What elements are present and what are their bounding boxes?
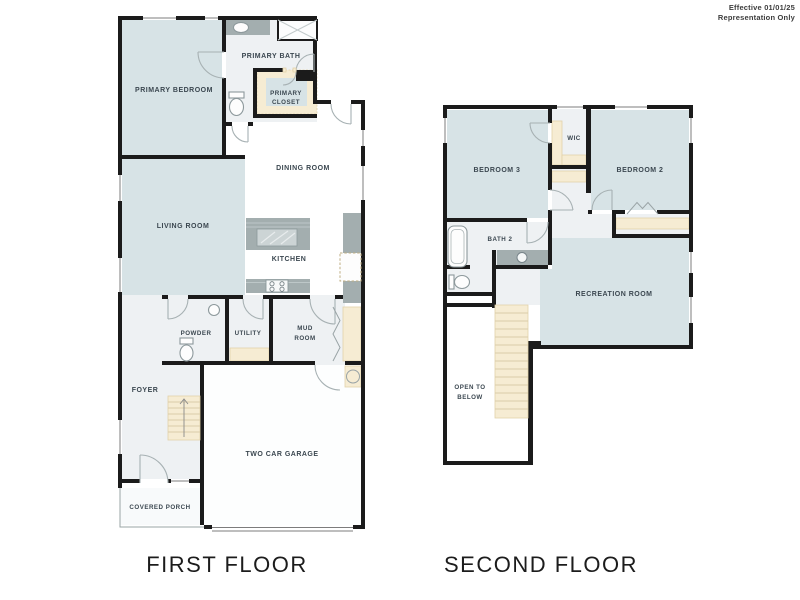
label-bedroom-3: BEDROOM 3 — [474, 167, 521, 174]
powder-sink-icon — [209, 305, 220, 316]
garage-area — [200, 365, 361, 525]
kitchen-island — [246, 218, 310, 250]
toilet-icon — [449, 275, 470, 289]
wic-shelf-left — [552, 121, 562, 165]
label-dining-room: DINING ROOM — [276, 165, 330, 172]
label-primary-bath: PRIMARY BATH — [242, 53, 301, 60]
label-open-to-below-2: BELOW — [457, 394, 483, 401]
bedroom-3-area — [447, 110, 548, 218]
label-kitchen: KITCHEN — [272, 256, 307, 263]
label-open-to-below-1: OPEN TO — [454, 384, 485, 391]
vanity-sink-icon — [517, 253, 527, 263]
hall-area — [552, 193, 591, 238]
label-mud-room-2: ROOM — [294, 335, 315, 342]
bedroom-2-closet-shelf — [616, 218, 689, 229]
label-garage: TWO CAR GARAGE — [245, 451, 318, 458]
mud-closet-shelf — [343, 307, 361, 361]
second-floor-caption: SECOND FLOOR — [411, 552, 671, 578]
closet-jamb — [283, 68, 286, 72]
label-primary-closet-1: PRIMARY — [270, 90, 302, 97]
shower-icon — [278, 20, 317, 40]
water-heater-pad — [345, 366, 361, 387]
label-mud-room-1: MUD — [297, 325, 313, 332]
label-living-room: LIVING ROOM — [157, 223, 210, 230]
label-utility: UTILITY — [235, 330, 262, 337]
label-recreation-room: RECREATION ROOM — [576, 291, 653, 298]
label-wic: WIC — [567, 135, 581, 142]
first-floor-caption: FIRST FLOOR — [97, 552, 357, 578]
bedroom-2-area — [591, 110, 689, 210]
second-floor-plan: BEDROOM 3 WIC BEDROOM 2 BATH 2 RECREATIO… — [430, 95, 700, 475]
label-bedroom-2: BEDROOM 2 — [617, 167, 664, 174]
patio-door-arc — [331, 104, 351, 124]
washer-dryer-area — [230, 348, 269, 361]
powder-toilet-icon — [180, 338, 193, 361]
label-bath-2: BATH 2 — [488, 236, 513, 243]
label-covered-porch: COVERED PORCH — [129, 504, 190, 511]
floor-plan-page: Effective 01/01/25 Representation Only — [0, 0, 800, 600]
label-foyer: FOYER — [132, 387, 159, 394]
label-powder: POWDER — [181, 330, 212, 337]
stair-landing-area — [496, 271, 540, 305]
stairs-second-floor — [495, 305, 528, 418]
toilet-icon — [229, 92, 244, 116]
label-primary-bedroom: PRIMARY BEDROOM — [135, 87, 213, 94]
stove-icon — [266, 280, 288, 292]
effective-note: Effective 01/01/25 Representation Only — [718, 3, 795, 22]
stairs-first-floor — [168, 396, 200, 440]
linen-shelf — [552, 171, 586, 182]
first-floor-plan: PRIMARY BEDROOM PRIMARY BATH PRIMARY CLO… — [100, 8, 370, 538]
second-floor-room-fills — [447, 109, 689, 345]
refrigerator-icon — [340, 253, 361, 281]
effective-date: Effective 01/01/25 — [718, 3, 795, 13]
representation-note: Representation Only — [718, 13, 795, 23]
label-primary-closet-2: CLOSET — [272, 99, 300, 106]
hall-area-2 — [591, 214, 612, 238]
wic-shelf-bottom — [562, 155, 586, 165]
island-sink-icon — [257, 229, 297, 246]
bathtub-icon — [448, 226, 467, 267]
closet-jamb — [293, 68, 296, 72]
bath-sink-icon — [234, 23, 249, 33]
bath-hall-door-arc — [232, 126, 248, 142]
